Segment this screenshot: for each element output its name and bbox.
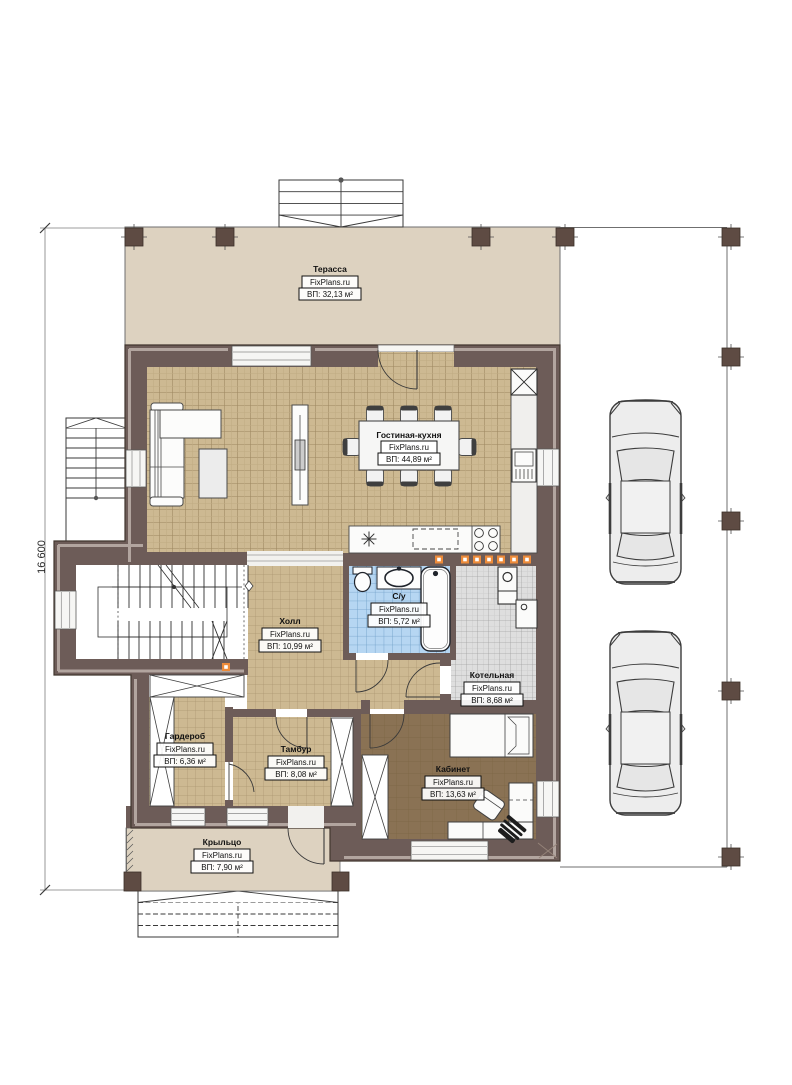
svg-text:ВП: 8,68 м²: ВП: 8,68 м² (471, 696, 513, 705)
svg-text:Кабинет: Кабинет (436, 764, 470, 774)
svg-text:FixPlans.ru: FixPlans.ru (472, 684, 512, 693)
svg-text:FixPlans.ru: FixPlans.ru (310, 278, 350, 287)
svg-text:ВП: 10,99 м²: ВП: 10,99 м² (267, 642, 313, 651)
svg-text:FixPlans.ru: FixPlans.ru (389, 443, 429, 452)
svg-text:Терасса: Терасса (313, 264, 347, 274)
svg-text:С/у: С/у (392, 591, 406, 601)
svg-text:ВП: 7,90 м²: ВП: 7,90 м² (201, 863, 243, 872)
svg-text:FixPlans.ru: FixPlans.ru (202, 851, 242, 860)
svg-text:FixPlans.ru: FixPlans.ru (433, 778, 473, 787)
svg-text:Тамбур: Тамбур (281, 744, 312, 754)
svg-text:Гардероб: Гардероб (165, 731, 205, 741)
svg-text:FixPlans.ru: FixPlans.ru (379, 605, 419, 614)
svg-text:16 600: 16 600 (36, 540, 48, 574)
svg-text:ВП: 44,89 м²: ВП: 44,89 м² (386, 455, 432, 464)
svg-text:ВП: 13,63 м²: ВП: 13,63 м² (430, 790, 476, 799)
svg-text:FixPlans.ru: FixPlans.ru (270, 630, 310, 639)
svg-text:Холл: Холл (279, 616, 300, 626)
svg-text:ВП: 5,72 м²: ВП: 5,72 м² (378, 617, 420, 626)
svg-text:ВП: 8,08 м²: ВП: 8,08 м² (275, 770, 317, 779)
svg-text:FixPlans.ru: FixPlans.ru (165, 745, 205, 754)
svg-text:Котельная: Котельная (470, 670, 515, 680)
svg-text:ВП: 32,13 м²: ВП: 32,13 м² (307, 290, 353, 299)
svg-text:FixPlans.ru: FixPlans.ru (276, 758, 316, 767)
svg-text:ВП: 6,36 м²: ВП: 6,36 м² (164, 757, 206, 766)
svg-text:Крыльцо: Крыльцо (203, 837, 242, 847)
svg-text:Гостиная-кухня: Гостиная-кухня (376, 430, 441, 440)
